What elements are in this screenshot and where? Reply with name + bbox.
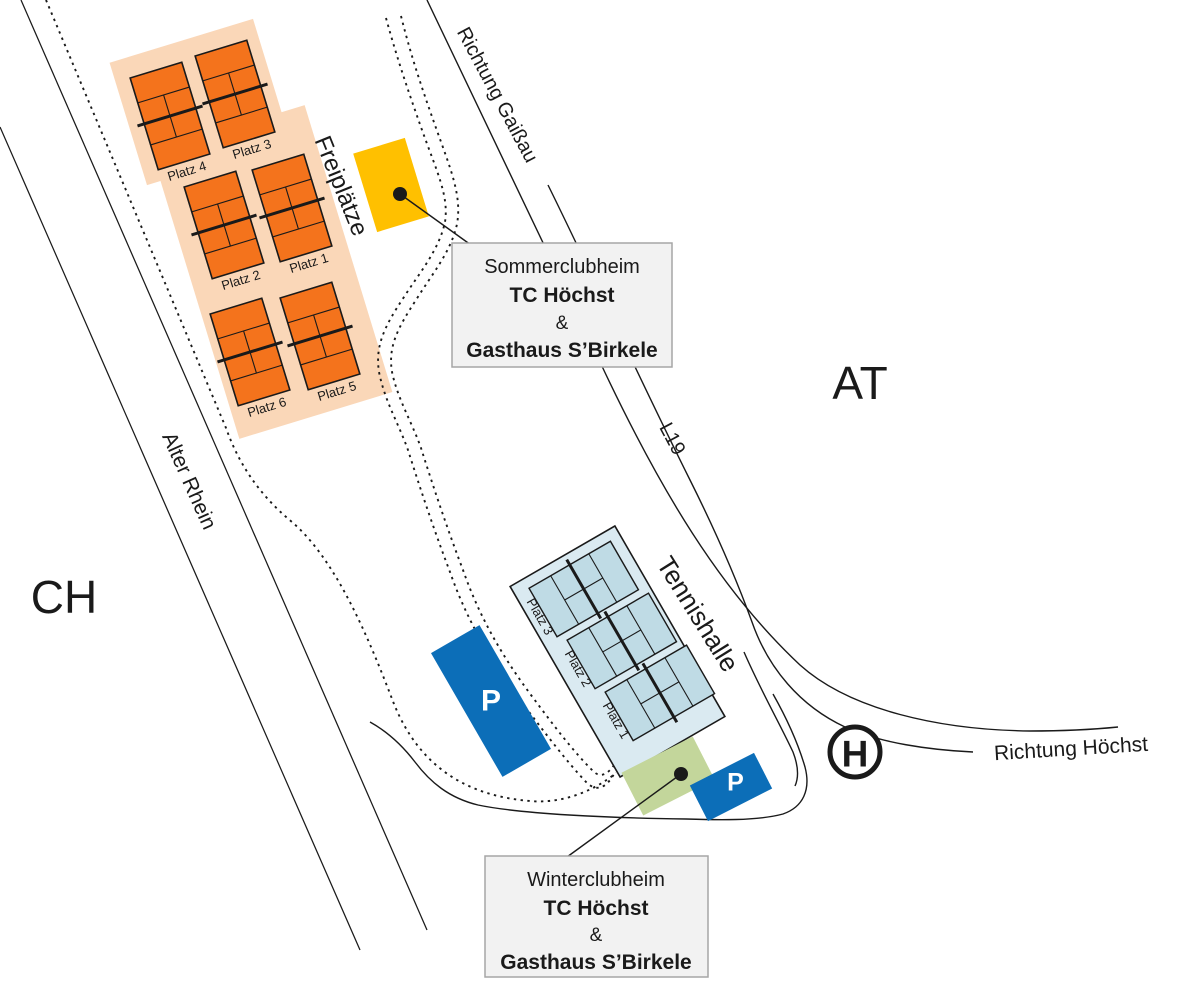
callout-ampersand: & xyxy=(556,313,569,334)
bus-stop-letter: H xyxy=(842,734,869,775)
parking-label: P xyxy=(727,768,744,796)
callout-ampersand: & xyxy=(590,925,603,946)
road-label-l19: L19 xyxy=(654,419,689,459)
callout-title: Sommerclubheim xyxy=(484,256,640,278)
region-label-ch: CH xyxy=(31,571,97,623)
callout-club: TC Höchst xyxy=(544,897,649,920)
river-label: Alter Rhein xyxy=(157,429,220,533)
callout-title: Winterclubheim xyxy=(527,869,665,891)
region-label-at: AT xyxy=(832,357,887,409)
parking-main: P xyxy=(431,625,551,777)
bus-stop-icon: H xyxy=(830,727,880,777)
summer-clubhouse-callout: Sommerclubheim TC Höchst & Gasthaus S’Bi… xyxy=(452,243,672,367)
callout-club: TC Höchst xyxy=(510,284,615,307)
winter-callout-dot xyxy=(674,767,688,781)
parking-label: P xyxy=(481,685,501,718)
callout-restaurant: Gasthaus S’Birkele xyxy=(500,951,691,974)
summer-callout-dot xyxy=(393,187,407,201)
site-map: Platz 4 Platz 3 Platz 2 Platz 1 xyxy=(0,0,1180,985)
callout-restaurant: Gasthaus S’Birkele xyxy=(466,339,657,362)
road-label-hoechst: Richtung Höchst xyxy=(993,733,1148,765)
winter-clubhouse-callout: Winterclubheim TC Höchst & Gasthaus S’Bi… xyxy=(485,856,708,977)
